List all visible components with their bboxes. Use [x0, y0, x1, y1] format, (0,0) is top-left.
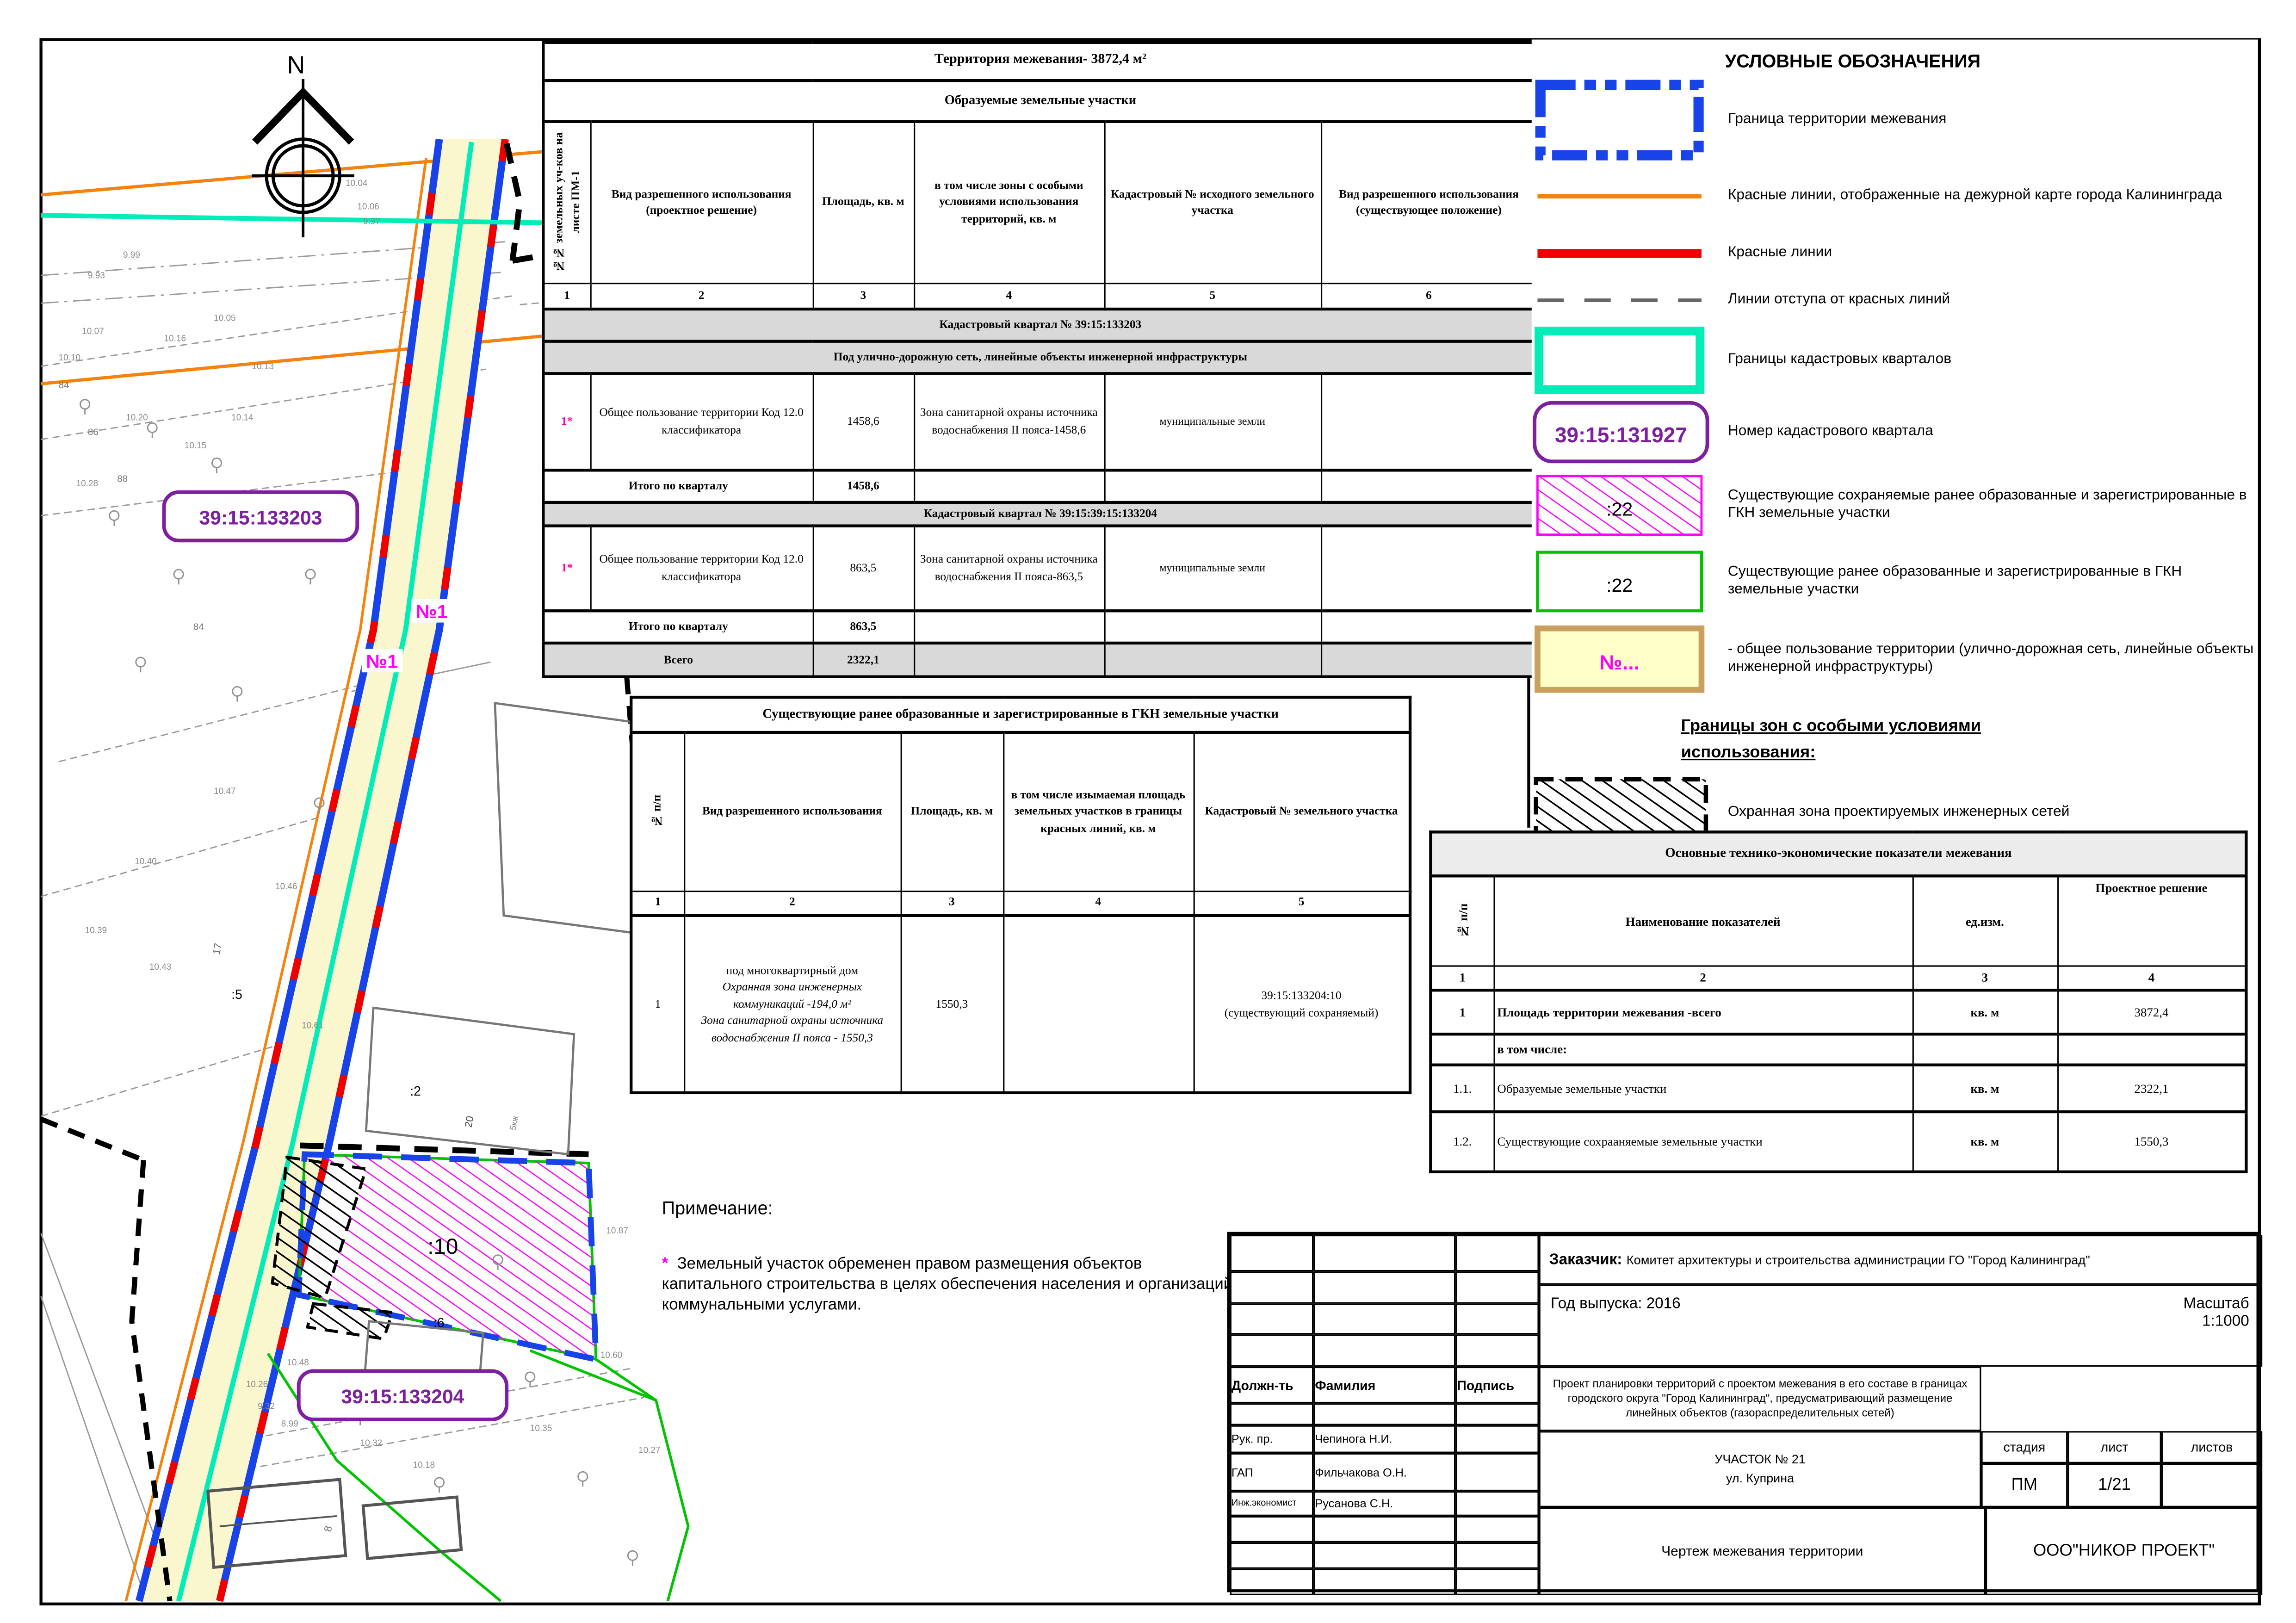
formed-parcels-table: Территория межевания- 3872,4 м² Образуем…	[542, 41, 1539, 678]
quarter-callout-133204: 39:15:133204	[299, 1371, 507, 1419]
preserved-parcel-icon: :22	[1532, 471, 1708, 539]
common-use-icon: №...	[1532, 624, 1708, 694]
table-row: 12 34 56	[543, 283, 1537, 309]
table-row: Существующие ранее образованные и зареги…	[631, 697, 1410, 732]
project-description: Проект планировки территорий с проектом …	[1539, 1367, 1981, 1431]
svg-text::22: :22	[1606, 575, 1633, 596]
sheet-value: 1/21	[2067, 1463, 2161, 1507]
svg-text:10.05: 10.05	[214, 313, 236, 323]
section-header: Кадастровый квартал № 39:15:39:15:133204	[543, 502, 1537, 526]
svg-text:10.40: 10.40	[135, 857, 157, 867]
svg-text:10.43: 10.43	[149, 962, 172, 972]
svg-text:10.04: 10.04	[346, 179, 368, 188]
note-heading: Примечание:	[662, 1198, 1236, 1219]
survey-boundary-icon	[1532, 79, 1708, 161]
legend-item: :22 Существующие ранее образованные и за…	[1532, 544, 2258, 620]
subtotal-label: Итого по кварталу	[543, 611, 812, 643]
svg-text:9.93: 9.93	[88, 271, 105, 281]
street-label: ул. Куприна	[1726, 1469, 1794, 1488]
col-header: Кадастровый № земельного участка	[1194, 732, 1410, 891]
col-header: Площадь, кв. м	[813, 122, 914, 283]
col-header: ед.изм.	[1912, 876, 2057, 965]
svg-text:10.06: 10.06	[357, 202, 379, 212]
col-header: № п/п	[650, 738, 667, 885]
total-label: Всего	[543, 643, 812, 677]
stage-value: ПМ	[1981, 1463, 2067, 1507]
col-header: Вид разрешенного использования (проектно…	[590, 122, 813, 283]
cadastre-line: (существующий сохраняемый)	[1197, 1004, 1406, 1021]
svg-text:10.20: 10.20	[126, 413, 148, 423]
svg-text:10.16: 10.16	[164, 334, 186, 344]
cadastre-line: 39:15:133204:10	[1197, 987, 1406, 1004]
tech-indicators-table: Основные технико-экономические показател…	[1429, 830, 2247, 1173]
orange-line-icon	[1532, 189, 1708, 204]
tech-title: Основные технико-экономические показател…	[1430, 832, 2246, 876]
staff-header: Фамилия	[1313, 1367, 1455, 1403]
sheets-header: листов	[2161, 1431, 2262, 1463]
existing-parcels-table: Существующие ранее образованные и зареги…	[630, 696, 1411, 1094]
table-row: Кадастровый квартал № 39:15:39:15:133204	[543, 502, 1537, 526]
col-header: Кадастровый № исходного земельного участ…	[1104, 122, 1321, 283]
svg-text:10.35: 10.35	[530, 1424, 552, 1433]
staff-role: ГАП	[1230, 1453, 1313, 1491]
staff-name: Чепинога Н.И.	[1313, 1425, 1455, 1453]
table-row: 1 Площадь территории межевания -всего кв…	[1430, 990, 2246, 1034]
sheets-value	[2161, 1463, 2262, 1507]
svg-text:8: 8	[322, 1525, 334, 1532]
svg-text:8.99: 8.99	[281, 1419, 298, 1429]
quarter-border-icon	[1532, 325, 1708, 396]
setback-line-icon	[1532, 293, 1708, 308]
table-row: Под улично-дорожную сеть, линейные объек…	[543, 341, 1537, 374]
signature-cell	[1455, 1491, 1539, 1516]
staff-name: Фильчакова О.Н.	[1313, 1453, 1455, 1491]
svg-text:9.97: 9.97	[363, 217, 380, 226]
table-row: 1* Общее пользование территории Код 12.0…	[543, 373, 1537, 470]
table-row: Образуемые земельные участки	[543, 81, 1537, 122]
col-header: Вид разрешенного использования (существу…	[1321, 122, 1538, 283]
legend-item: Граница территории межевания	[1532, 78, 2258, 163]
stage-header: стадия	[1981, 1431, 2067, 1463]
subtotal-value: 863,5	[813, 611, 914, 643]
svg-text:10.18: 10.18	[413, 1460, 435, 1470]
scale-value: 1:1000	[2183, 1313, 2249, 1330]
legend-item: 39:15:131927 Номер кадастрового квартала	[1532, 397, 2258, 467]
note-block: Примечание: * Земельный участок обремене…	[662, 1198, 1236, 1316]
total-value: 2322,1	[813, 643, 914, 677]
parcel-num: 1	[631, 916, 684, 1093]
legend-item: Линии отступа от красных линий	[1532, 277, 2258, 323]
note-star: *	[662, 1255, 668, 1273]
compass-icon: N	[252, 51, 354, 237]
svg-text::2: :2	[410, 1084, 421, 1099]
col-header: № п/п	[1454, 880, 1472, 962]
svg-text:84: 84	[59, 380, 69, 390]
table1-subtitle: Образуемые земельные участки	[543, 81, 1537, 122]
svg-text:20: 20	[462, 1115, 476, 1128]
svg-text:9.32: 9.32	[258, 1402, 275, 1412]
staff-header: Подпись	[1455, 1367, 1539, 1403]
svg-text:№1: №1	[416, 601, 448, 622]
site-label: УЧАСТОК № 21	[1714, 1450, 1805, 1469]
section-subheader: Под улично-дорожную сеть, линейные объек…	[543, 341, 1537, 374]
zones-heading: Границы зон с особыми условиями использо…	[1681, 713, 2047, 767]
svg-text:86: 86	[88, 427, 99, 437]
col-header: Проектное решение	[2057, 876, 2246, 965]
use-line: Зона санитарной охраны источника водосна…	[687, 1013, 897, 1047]
svg-text:39:15:133204: 39:15:133204	[341, 1386, 464, 1408]
table-row: в том числе:	[1430, 1034, 2246, 1065]
use-line: Охранная зона инженерных коммуникаций -1…	[687, 979, 897, 1012]
year-label: Год выпуска: 2016	[1551, 1295, 1681, 1313]
svg-text:39:15:131927: 39:15:131927	[1555, 423, 1687, 447]
svg-text::22: :22	[1606, 498, 1633, 520]
svg-text:17: 17	[210, 942, 224, 956]
table-row: Итого по кварталу 1458,6	[543, 470, 1537, 502]
legend-item: №... - общее пользование территории (ули…	[1532, 619, 2258, 699]
note-text: Земельный участок обременен правом разме…	[662, 1255, 1233, 1314]
legend-item: Красные линии, отображенные на дежурной …	[1532, 162, 2258, 230]
table2-title: Существующие ранее образованные и зареги…	[631, 697, 1410, 732]
table-row: № п/п Наименование показателей ед.изм. П…	[1430, 876, 2246, 965]
svg-text:10.87: 10.87	[606, 1226, 628, 1236]
table-row: Всего 2322,1	[543, 643, 1537, 677]
svg-text:10.60: 10.60	[600, 1350, 623, 1360]
svg-text:10.07: 10.07	[82, 327, 104, 336]
table-row: 12 34	[1430, 965, 2246, 990]
col-header: Наименование показателей	[1493, 876, 1912, 965]
svg-text:10.46: 10.46	[275, 882, 297, 892]
table-row: №№ земельных уч-ков на листе ПМ-1 Вид ра…	[543, 122, 1537, 283]
svg-text:10.47: 10.47	[214, 787, 236, 796]
svg-text::10: :10	[427, 1234, 458, 1259]
svg-text:10.15: 10.15	[185, 441, 207, 451]
svg-text::5: :5	[231, 987, 242, 1002]
use-line: под многоквартирный дом	[687, 962, 897, 979]
svg-text:10.26: 10.26	[246, 1380, 268, 1389]
table-row: 1 под многоквартирный дом Охранная зона …	[631, 916, 1410, 1093]
legend-item: :22 Существующие сохраняемые ранее образ…	[1532, 467, 2258, 544]
table-row: Основные технико-экономические показател…	[1430, 832, 2246, 876]
svg-text:№1: №1	[366, 651, 398, 672]
svg-text:10.28: 10.28	[76, 479, 99, 489]
parcel-no1-label: №1	[362, 649, 403, 673]
table-row: Территория межевания- 3872,4 м²	[543, 43, 1537, 81]
company-name: ООО"НИКОР ПРОЕКТ"	[1986, 1507, 2262, 1595]
legend-title: УСЛОВНЫЕ ОБОЗНАЧЕНИЯ	[1725, 51, 2258, 72]
svg-text:10.10: 10.10	[59, 353, 81, 363]
legend-item: Красные линии	[1532, 230, 2258, 277]
col-header: Вид разрешенного использования	[684, 732, 900, 891]
svg-text:10.39: 10.39	[85, 926, 107, 935]
svg-text:84: 84	[193, 621, 204, 632]
table-row: Итого по кварталу 863,5	[543, 611, 1537, 643]
drawing-sheet: 10.0410.06 9.979.99 9.9310.05 10.1610.07…	[0, 0, 2296, 1623]
svg-text:N: N	[287, 51, 305, 79]
svg-text:9.99: 9.99	[123, 250, 140, 260]
staff-role: Рук. пр.	[1230, 1425, 1313, 1453]
section-header: Кадастровый квартал № 39:15:133203	[543, 309, 1537, 341]
col-header: в том числе изымаемая площадь земельных …	[1003, 732, 1193, 891]
col-header: в том числе зоны с особыми условиями исп…	[914, 122, 1104, 283]
table-row: 1* Общее пользование территории Код 12.0…	[543, 526, 1537, 611]
svg-text:5кж: 5кж	[508, 1115, 520, 1132]
sheet-header: лист	[2067, 1431, 2161, 1463]
staff-role: Инж.экономист	[1230, 1491, 1313, 1516]
signature-cell	[1455, 1425, 1539, 1453]
parcel-num: 1*	[543, 526, 590, 611]
table1-title: Территория межевания- 3872,4 м²	[543, 43, 1537, 81]
signature-cell	[1455, 1453, 1539, 1491]
col-header: Площадь, кв. м	[901, 732, 1003, 891]
legend-item: Границы кадастровых кварталов	[1532, 324, 2258, 397]
table-row: № п/п Вид разрешенного использования Пло…	[631, 732, 1410, 891]
title-block: Должн-ть Фамилия Подпись Рук. пр. Чепино…	[1227, 1232, 2259, 1592]
svg-text:88: 88	[117, 474, 128, 484]
table-row: Кадастровый квартал № 39:15:133203	[543, 309, 1537, 341]
svg-text:10.61: 10.61	[302, 1021, 324, 1031]
customer-value: Комитет архитектуры и строительства адми…	[1627, 1252, 2090, 1267]
svg-text:10.32: 10.32	[360, 1438, 383, 1448]
staff-header: Должн-ть	[1230, 1367, 1313, 1403]
subtotal-label: Итого по кварталу	[543, 470, 812, 502]
drawing-title: Чертеж межевания территории	[1539, 1507, 1986, 1595]
parcel-num: 1*	[543, 373, 590, 470]
svg-text::6: :6	[433, 1315, 445, 1330]
svg-text:10.48: 10.48	[287, 1358, 309, 1368]
svg-text:10.14: 10.14	[231, 413, 254, 423]
svg-text:№...: №...	[1600, 651, 1640, 674]
svg-text:39:15:133203: 39:15:133203	[199, 507, 322, 529]
table-row: 1.1. Образуемые земельные участки кв. м …	[1430, 1065, 2246, 1112]
svg-text:10.13: 10.13	[252, 362, 274, 372]
subtotal-value: 1458,6	[813, 470, 914, 502]
table-row: 12 34 5	[631, 891, 1410, 916]
col-header: №№ земельных уч-ков на листе ПМ-1	[550, 126, 584, 279]
red-line-icon	[1532, 246, 1708, 261]
registered-parcel-icon: :22	[1532, 548, 1708, 615]
quarter-number-icon: 39:15:131927	[1532, 398, 1713, 466]
quarter-callout-133203: 39:15:133203	[164, 492, 358, 540]
svg-text:10.27: 10.27	[638, 1446, 661, 1456]
parcel-no1-label: №1	[411, 599, 452, 623]
staff-name: Русанова С.Н.	[1313, 1491, 1455, 1516]
legend-panel: УСЛОВНЫЕ ОБОЗНАЧЕНИЯ Граница территории …	[1532, 39, 2258, 852]
table-row: 1.2. Существующие сохрааняемые земельные…	[1430, 1112, 2246, 1172]
customer-label: Заказчик:	[1549, 1251, 1622, 1269]
scale-label: Масштаб	[2183, 1295, 2249, 1313]
